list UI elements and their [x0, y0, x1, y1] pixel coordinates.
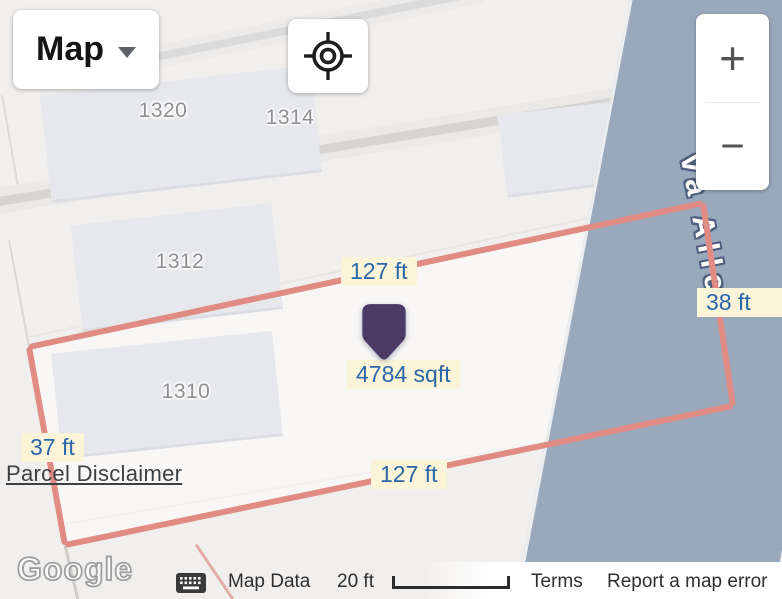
parcel-number: 1320 [139, 99, 188, 123]
google-logo[interactable]: Google [17, 551, 133, 588]
zoom-controls: + − [696, 14, 769, 190]
measure-left: 37 ft [21, 433, 84, 462]
scale-label: 20 ft [337, 571, 374, 593]
keyboard-icon[interactable] [176, 573, 206, 593]
parcel-number: 1314 [266, 106, 315, 130]
parcel-number: 1312 [156, 250, 205, 274]
map-data-label: Map Data [228, 571, 310, 593]
map-type-button[interactable]: Map [13, 10, 159, 89]
measure-right: 38 ft [697, 288, 782, 317]
report-error-link[interactable]: Report a map error [607, 571, 768, 593]
measure-area: 4784 sqft [347, 360, 460, 389]
parcel-number: 1310 [162, 380, 211, 404]
triangle-down-icon [118, 47, 136, 58]
measure-top: 127 ft [341, 257, 417, 286]
measure-bottom: 127 ft [371, 460, 447, 489]
scale-bar [392, 576, 510, 589]
terms-link[interactable]: Terms [531, 571, 583, 593]
parcel-disclaimer-link[interactable]: Parcel Disclaimer [6, 461, 182, 487]
crosshair-icon [304, 32, 352, 80]
zoom-in-button[interactable]: + [696, 14, 769, 102]
zoom-out-button[interactable]: − [696, 103, 769, 191]
lot-line [8, 240, 30, 348]
map-type-label: Map [36, 30, 104, 69]
my-location-button[interactable] [288, 19, 368, 93]
parcel-marker[interactable] [355, 299, 413, 363]
map-canvas[interactable]: va Alle 1320 1314 1312 1310 127 ft 38 ft… [0, 0, 782, 599]
